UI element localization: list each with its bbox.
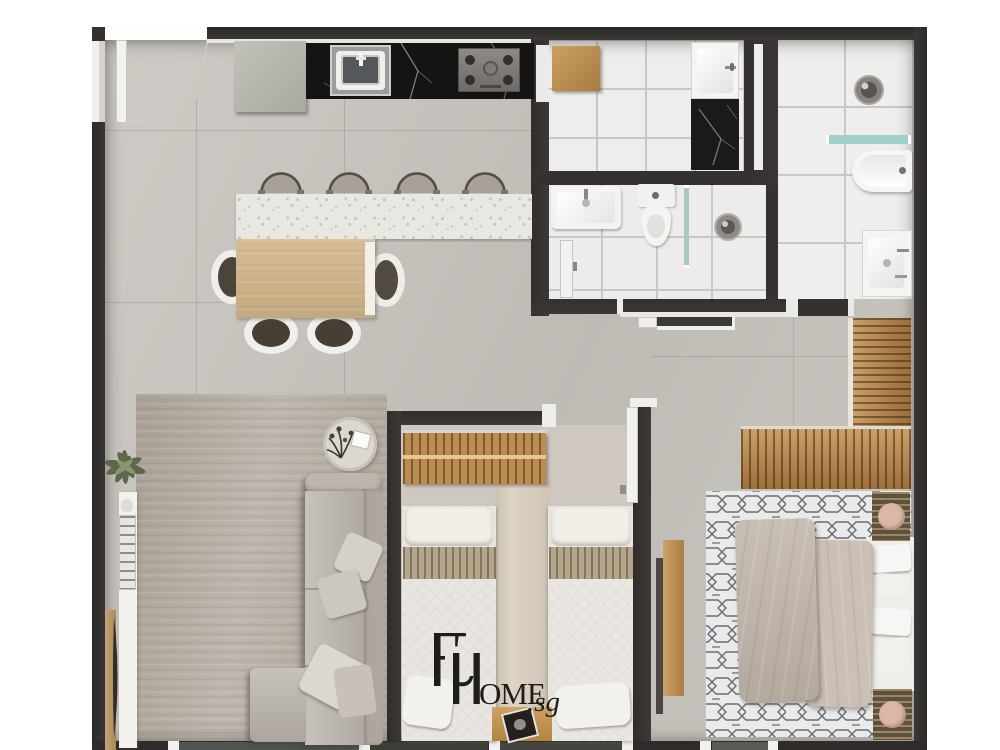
- svg-text:.sg: .sg: [527, 686, 560, 718]
